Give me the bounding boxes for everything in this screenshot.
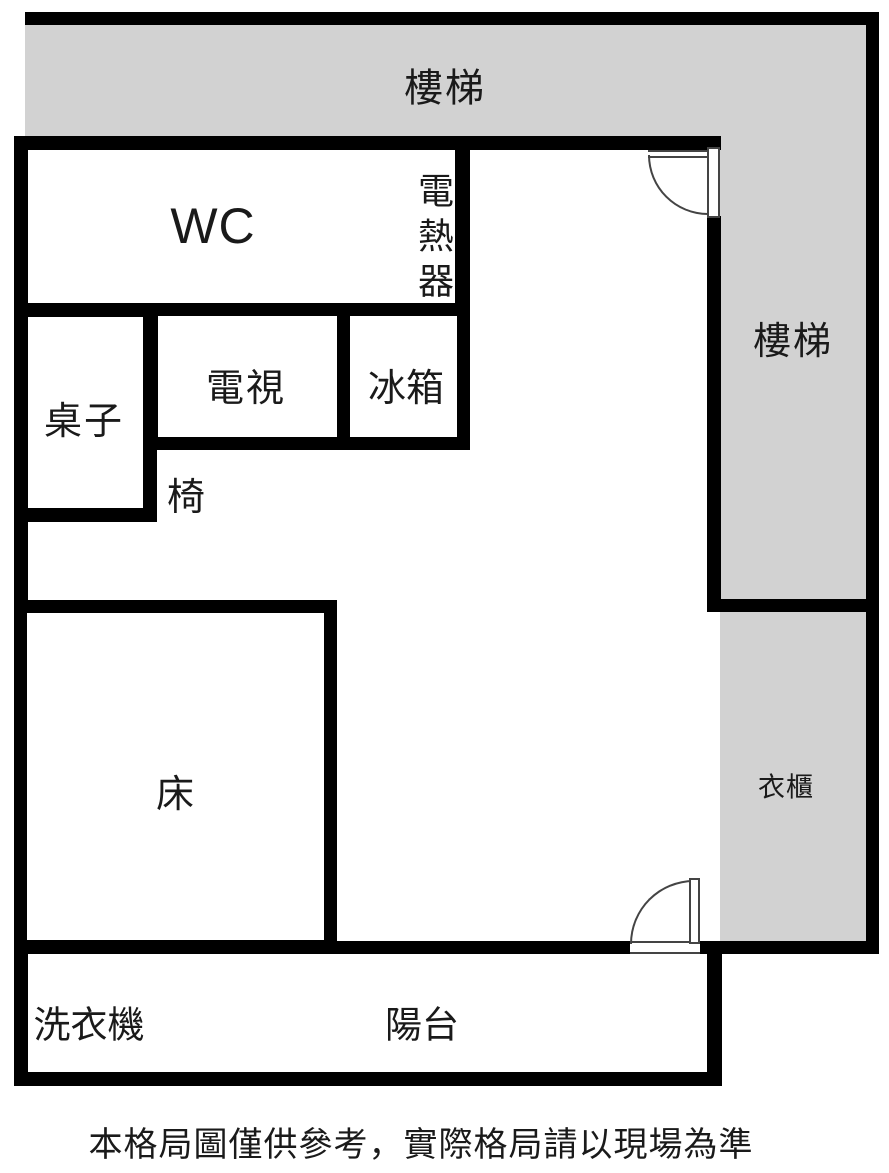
bed-label: 床 bbox=[156, 776, 196, 814]
balcony-door-leaf bbox=[689, 878, 700, 944]
wall-balcony-right bbox=[707, 941, 722, 1085]
balcony-label: 陽台 bbox=[385, 1007, 459, 1044]
tv-label: 電視 bbox=[206, 370, 286, 408]
wall-balcony-top-right bbox=[700, 941, 879, 954]
wall-table-bottom bbox=[14, 508, 157, 522]
balcony-door-swing-arc-icon bbox=[630, 880, 694, 944]
stairs-top-label: 樓梯 bbox=[404, 70, 486, 109]
stairs-right-label: 樓梯 bbox=[753, 323, 833, 361]
wall-balcony-bottom bbox=[14, 1072, 722, 1086]
floor-plan: 樓梯 樓梯 衣櫃 WC 電熱器 桌子 電視 冰箱 椅 床 洗衣機 陽台 本格局圖… bbox=[0, 0, 889, 1173]
wall-stairs-wardrobe-divider bbox=[707, 599, 879, 612]
washing-machine-label: 洗衣機 bbox=[34, 1007, 145, 1044]
stairs-area-right bbox=[720, 136, 866, 612]
wall-main-right bbox=[707, 216, 721, 612]
wall-below-top-stairs bbox=[14, 136, 721, 150]
entry-door-leaf bbox=[707, 147, 720, 218]
chair-label: 椅 bbox=[167, 479, 207, 517]
wall-right-outer bbox=[866, 12, 879, 953]
wc-label: WC bbox=[170, 201, 255, 251]
disclaimer-caption: 本格局圖僅供參考，實際格局請以現場為準 bbox=[89, 1117, 754, 1166]
entry-door-swing-arc-icon bbox=[648, 155, 708, 215]
wardrobe-label: 衣櫃 bbox=[758, 775, 814, 802]
wall-top-outer bbox=[25, 12, 879, 25]
water-heater-label: 電熱器 bbox=[415, 172, 451, 307]
table-label: 桌子 bbox=[44, 403, 124, 441]
fridge-label: 冰箱 bbox=[368, 370, 444, 408]
